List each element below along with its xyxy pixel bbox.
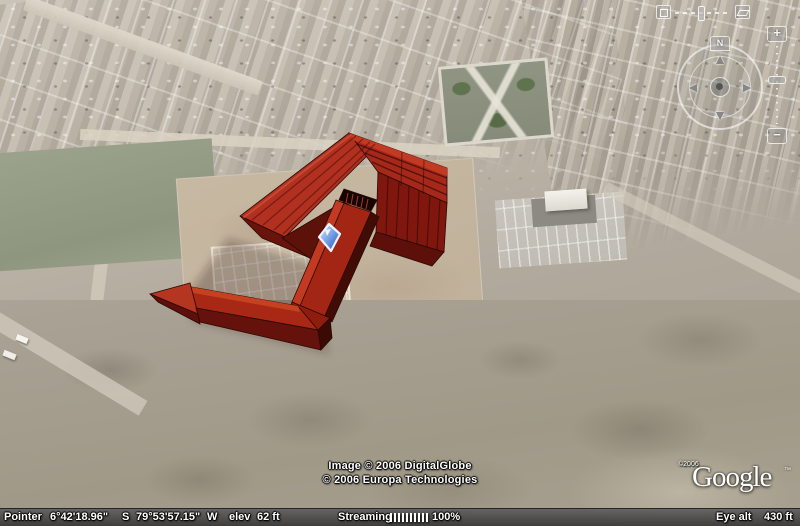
tilt-slider-handle[interactable] xyxy=(698,6,705,21)
longitude-hemisphere: W xyxy=(207,511,217,524)
placemark-icon[interactable] xyxy=(316,222,344,254)
zoom-in-button[interactable]: + xyxy=(767,26,787,42)
tilted-view-icon xyxy=(736,10,749,16)
trademark-symbol: ™ xyxy=(784,467,791,474)
zoom-slider-track[interactable] xyxy=(776,46,778,124)
zoom-slider[interactable]: + − xyxy=(767,26,787,144)
pointer-label: Pointer xyxy=(4,511,42,524)
eye-alt-value: 430 ft xyxy=(764,511,793,524)
north-indicator[interactable]: N xyxy=(710,36,730,51)
pan-south-arrow-icon[interactable]: ▼ xyxy=(713,108,727,122)
pan-west-arrow-icon[interactable]: ◄ xyxy=(686,80,700,94)
earth-viewport[interactable]: N ▲ ▼ ◄ ► + − Image © 2006 DigitalGlobe … xyxy=(0,0,800,526)
zoom-slider-handle[interactable] xyxy=(768,76,786,84)
pointer-latitude: 6°42'18.96" xyxy=(50,511,108,524)
elevation-value: 62 ft xyxy=(257,511,280,524)
pan-east-arrow-icon[interactable]: ► xyxy=(740,80,754,94)
pointer-longitude: 79°53'57.15" xyxy=(136,511,200,524)
latitude-hemisphere: S xyxy=(122,511,129,524)
streaming-percent: 100% xyxy=(432,511,460,524)
streaming-progress-bars xyxy=(390,513,428,522)
tilt-full-button[interactable] xyxy=(735,5,750,19)
zoom-out-button[interactable]: − xyxy=(767,128,787,144)
status-bar: Pointer 6°42'18.96" S 79°53'57.15" W ele… xyxy=(0,508,800,526)
streaming-label: Streaming xyxy=(338,511,392,524)
tilt-slider[interactable] xyxy=(656,5,750,22)
google-logo: ©2006 Google ™ xyxy=(676,457,800,501)
elevation-label: elev xyxy=(229,511,250,524)
placemark-diamond-icon xyxy=(316,222,344,254)
building-faces xyxy=(150,133,447,350)
compass-navigator[interactable]: N ▲ ▼ ◄ ► xyxy=(677,44,763,130)
tilt-reset-button[interactable] xyxy=(656,5,671,19)
eye-alt-label: Eye alt xyxy=(716,511,751,524)
compass-center-knob[interactable] xyxy=(710,77,730,97)
top-down-view-icon xyxy=(660,9,668,17)
google-wordmark: Google xyxy=(692,461,771,494)
pan-north-arrow-icon[interactable]: ▲ xyxy=(713,52,727,66)
